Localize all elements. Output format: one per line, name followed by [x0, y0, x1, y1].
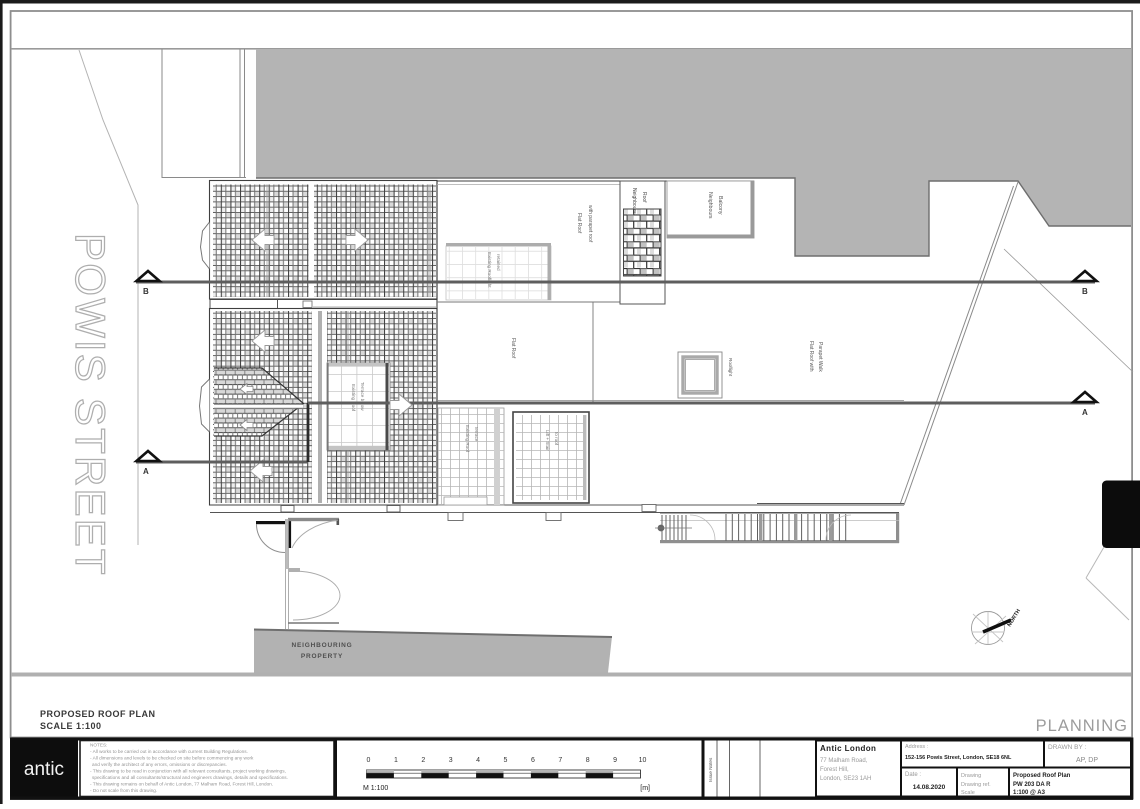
svg-text:Flat Roof with: Flat Roof with [808, 341, 814, 372]
svg-text:Neighbours: Neighbours [631, 188, 637, 214]
svg-text:14.08.2020: 14.08.2020 [913, 784, 946, 791]
svg-text:retained: retained [496, 254, 501, 271]
svg-text:AP, DP: AP, DP [1076, 757, 1098, 764]
svg-text:Flat Roof: Flat Roof [510, 338, 516, 359]
svg-text:Neighbours: Neighbours [707, 192, 713, 219]
svg-text:B: B [143, 287, 149, 296]
svg-text:Antic London: Antic London [820, 744, 876, 753]
svg-text:B: B [1082, 287, 1088, 296]
svg-text:7: 7 [558, 757, 562, 764]
svg-text:1:100 @ A3: 1:100 @ A3 [1013, 790, 1046, 796]
svg-text:Parapet Walk: Parapet Walk [817, 342, 823, 372]
svg-text:SCALE 1:100: SCALE 1:100 [40, 721, 102, 731]
svg-text:Forest Hill,: Forest Hill, [820, 767, 849, 773]
svg-text:152-156 Powis Street, London,: 152-156 Powis Street, London, SE18 6NL [905, 755, 1012, 761]
svg-text:- Do not scale from this draw: - Do not scale from this drawing. [90, 788, 157, 793]
svg-text:terrace: terrace [474, 427, 479, 442]
svg-text:0: 0 [367, 757, 371, 764]
svg-text:and verify the architect of an: and verify the architect of any errors, … [92, 762, 227, 767]
svg-text:DRAWN BY :: DRAWN BY : [1048, 744, 1086, 751]
svg-text:A: A [143, 467, 149, 476]
svg-text:77 Malham Road,: 77 Malham Road, [820, 758, 868, 764]
svg-text:with parapet roof: with parapet roof [587, 205, 593, 243]
svg-text:specifications and all consult: specifications and all consultants/struc… [92, 775, 288, 780]
svg-text:Roof: Roof [641, 192, 647, 203]
svg-text:5: 5 [504, 757, 508, 764]
svg-text:6: 6 [531, 757, 535, 764]
svg-text:2: 2 [421, 757, 425, 764]
svg-text:Rooflight: Rooflight [728, 358, 733, 377]
svg-text:10: 10 [639, 757, 647, 764]
svg-text:Balcony: Balcony [717, 196, 723, 215]
svg-text:Existing Roof: Existing Roof [351, 384, 356, 412]
svg-text:PROPERTY: PROPERTY [301, 653, 343, 660]
svg-text:PROPOSED ROOF PLAN: PROPOSED ROOF PLAN [40, 709, 156, 719]
svg-text:antic: antic [24, 759, 64, 780]
svg-text:Proposed Roof Plan: Proposed Roof Plan [1013, 773, 1071, 779]
svg-text:[m]: [m] [640, 785, 650, 792]
svg-text:9: 9 [613, 757, 617, 764]
svg-text:Drawing: Drawing [961, 773, 981, 779]
svg-text:8: 8 [586, 757, 590, 764]
svg-text:3: 3 [449, 757, 453, 764]
svg-text:Issue Notes: Issue Notes [708, 757, 713, 782]
svg-text:- This drawing remains on beh: - This drawing remains on behalf of Anti… [90, 782, 273, 787]
svg-text:Drawing ref.: Drawing ref. [961, 782, 991, 788]
svg-text:Date :: Date : [905, 772, 921, 778]
svg-text:M 1:100: M 1:100 [363, 785, 388, 792]
svg-text:to roof: to roof [554, 432, 559, 446]
svg-text:Flat Roof: Flat Roof [576, 213, 582, 234]
svg-text:- All works to be carried out: - All works to be carried out in accorda… [90, 749, 248, 754]
svg-text:PW 203 DA R: PW 203 DA R [1013, 782, 1051, 788]
svg-text:Lift + Stair: Lift + Stair [545, 430, 550, 451]
svg-text:Existing Roof: Existing Roof [465, 425, 470, 453]
svg-text:NEIGHBOURING: NEIGHBOURING [292, 642, 353, 649]
svg-text:NOTES:: NOTES: [90, 743, 107, 748]
svg-text:A: A [1082, 408, 1088, 417]
svg-text:POWIS STREET: POWIS STREET [67, 233, 114, 577]
svg-text:4: 4 [476, 757, 480, 764]
svg-text:1: 1 [394, 757, 398, 764]
svg-text:PLANNING: PLANNING [1036, 717, 1128, 735]
svg-text:London, SE23 1AH: London, SE23 1AH [820, 776, 871, 782]
svg-text:Scale: Scale [961, 790, 975, 796]
svg-text:Terrace below: Terrace below [360, 382, 365, 411]
svg-text:- All dimensions and levels t: - All dimensions and levels to be checke… [90, 756, 254, 761]
svg-text:Address :: Address : [905, 744, 929, 750]
svg-text:- This drawing to be read in: - This drawing to be read in conjunction… [90, 769, 286, 774]
